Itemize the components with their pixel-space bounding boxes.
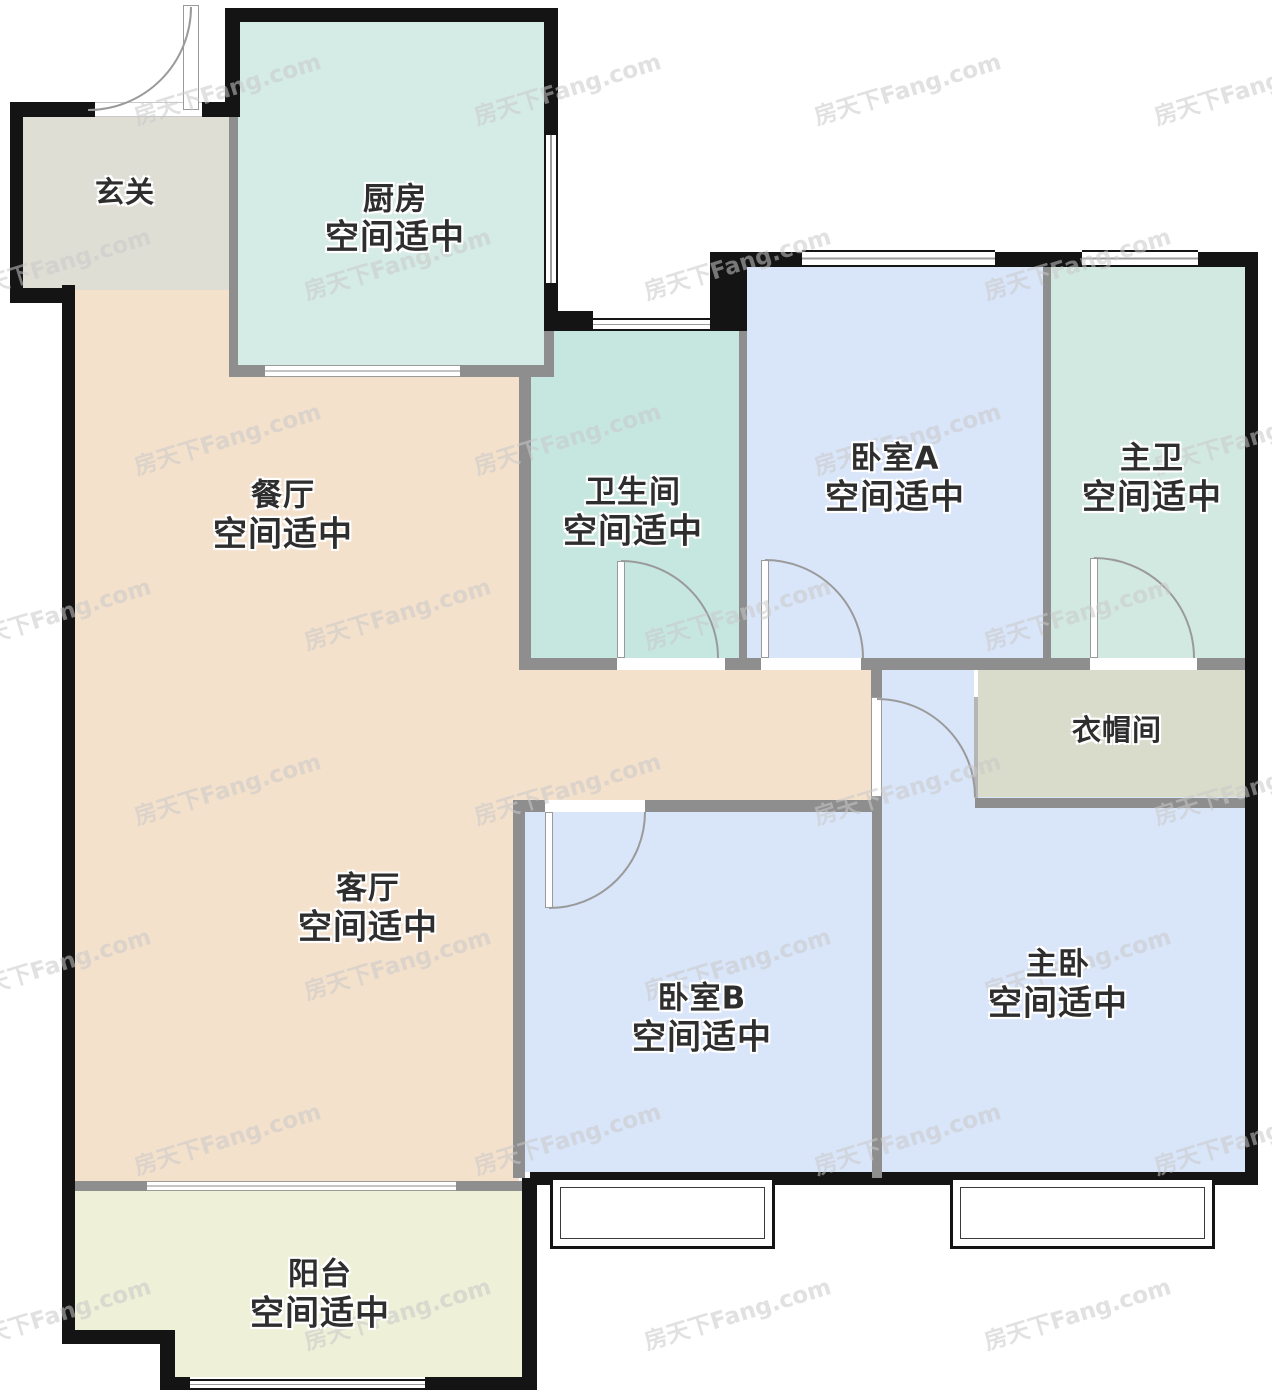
wall-segment <box>974 697 978 798</box>
door-opening <box>1090 658 1197 670</box>
room-status-bathroom: 空间适中 <box>563 504 703 553</box>
door-opening <box>761 658 861 670</box>
wall-segment <box>531 658 617 670</box>
door-arc <box>88 7 191 110</box>
room-status-master-bedroom: 空间适中 <box>988 976 1128 1025</box>
wall-segment <box>739 331 747 658</box>
wall-segment <box>872 812 882 1178</box>
wall-segment <box>62 1330 175 1344</box>
wall-segment <box>975 798 1245 808</box>
wall-segment <box>861 658 1090 670</box>
wall-segment <box>460 365 544 377</box>
room-bathroom <box>554 331 739 377</box>
room-dining-living <box>75 288 519 1181</box>
wall-segment <box>10 102 23 303</box>
room-status-bedroom-b: 空间适中 <box>632 1010 772 1059</box>
wall-segment <box>522 1178 537 1390</box>
window <box>802 250 995 267</box>
floor-plan: 房天下Fang.com房天下Fang.com房天下Fang.com房天下Fang… <box>0 0 1272 1400</box>
door-leaf <box>1090 558 1098 658</box>
window <box>1082 250 1198 267</box>
door-leaf <box>761 560 769 658</box>
wall-segment <box>544 311 593 331</box>
sliding-door <box>265 365 460 377</box>
room-status-kitchen: 空间适中 <box>325 210 465 259</box>
wall-segment <box>225 8 558 22</box>
wall-segment <box>732 252 802 267</box>
room-status-bedroom-a: 空间适中 <box>825 470 965 519</box>
wall-segment <box>75 1181 147 1191</box>
window <box>593 318 710 331</box>
room-label-cloakroom: 衣帽间 <box>1072 707 1162 749</box>
door-opening <box>617 658 725 670</box>
wall-segment <box>160 1330 175 1390</box>
bay-window <box>950 1177 1215 1249</box>
watermark-text: 房天下Fang.com <box>809 42 1004 131</box>
bay-window <box>550 1177 775 1249</box>
wall-segment <box>544 8 558 135</box>
wall-segment <box>62 285 75 1344</box>
room-label-foyer: 玄关 <box>95 169 155 211</box>
wall-segment <box>425 1377 537 1390</box>
room-corridor <box>882 670 974 797</box>
watermark-text: 房天下Fang.com <box>979 1267 1174 1356</box>
wall-segment <box>995 252 1082 267</box>
sliding-window <box>147 1181 456 1191</box>
door-leaf <box>617 561 625 658</box>
wall-segment <box>456 1181 522 1191</box>
balcony-notch <box>62 1344 160 1390</box>
watermark-text: 房天下Fang.com <box>639 1267 834 1356</box>
room-status-balcony: 空间适中 <box>250 1286 390 1335</box>
wall-segment <box>1197 658 1245 670</box>
door-leaf <box>545 812 553 908</box>
wall-segment <box>544 331 554 377</box>
window <box>544 135 558 283</box>
watermark-text: 房天下Fang.com <box>1149 42 1272 131</box>
room-status-living: 空间适中 <box>298 900 438 949</box>
wall-segment <box>229 117 238 365</box>
door-leaf <box>183 5 199 110</box>
room-status-dining: 空间适中 <box>213 507 353 556</box>
door-opening <box>545 800 645 812</box>
wall-segment <box>1245 252 1258 1185</box>
wall-segment <box>871 670 882 697</box>
wall-segment <box>229 365 265 377</box>
room-hallway <box>519 670 872 800</box>
wall-segment <box>513 800 525 1178</box>
wall-segment <box>519 377 531 670</box>
wall-segment <box>225 8 240 117</box>
wall-segment <box>725 658 761 670</box>
wall-segment <box>645 800 873 812</box>
room-status-master-bath: 空间适中 <box>1082 470 1222 519</box>
door-leaf <box>871 697 882 797</box>
wall-segment <box>1043 267 1051 658</box>
wall-segment <box>10 288 75 303</box>
window <box>190 1379 425 1390</box>
